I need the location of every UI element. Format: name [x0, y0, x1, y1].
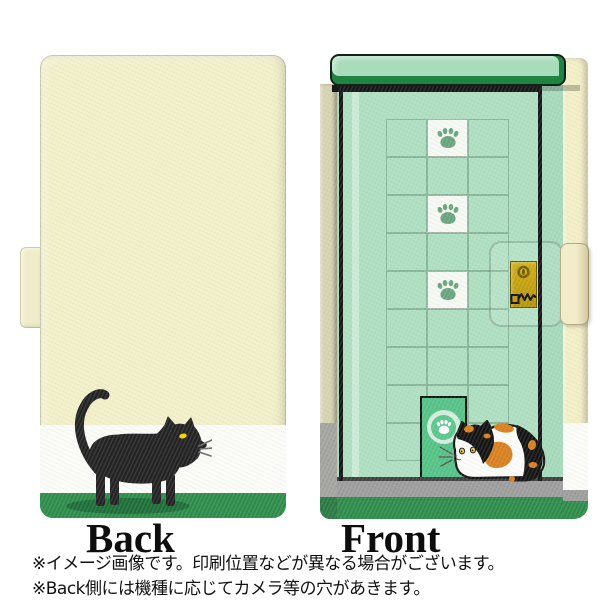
grid-cell	[427, 347, 468, 385]
edge-gray-segment	[563, 490, 588, 501]
disclaimer: ※イメージ画像です。印刷位置などが異なる場合がございます。 ※Back側には機種…	[32, 552, 592, 601]
keyhole-icon	[519, 267, 529, 277]
disclaimer-line-1: ※イメージ画像です。印刷位置などが異なる場合がございます。	[32, 552, 592, 577]
paw-print-icon	[435, 201, 461, 227]
case-spine	[320, 84, 337, 519]
door-header-bar	[330, 54, 566, 86]
grid-cell	[386, 119, 427, 157]
spine-gray-segment	[320, 423, 337, 497]
grid-cell	[468, 347, 509, 385]
paw-print-icon	[435, 125, 461, 151]
calico-whiskers	[439, 447, 452, 466]
back-cover	[40, 55, 286, 518]
door-left-edge	[339, 90, 343, 481]
grid-cell	[427, 157, 468, 195]
lock-plate	[510, 261, 537, 308]
edge-green-segment	[563, 501, 588, 519]
door-highlight	[352, 90, 359, 478]
grid-cell	[386, 157, 427, 195]
paw-print-icon	[435, 277, 461, 303]
grid-cell	[468, 119, 509, 157]
grid-cell	[386, 347, 427, 385]
paw-tile	[427, 195, 468, 233]
product-image: Back Front ※イメージ画像です。印刷位置などが異なる場合がございます。…	[0, 0, 600, 600]
grid-cell	[468, 157, 509, 195]
grid-cell	[386, 233, 427, 271]
calico-cat-illustration	[438, 414, 552, 484]
front-cover	[320, 54, 588, 519]
paw-tile	[427, 119, 468, 157]
grid-cell	[468, 195, 509, 233]
grid-cell	[386, 271, 427, 309]
front-strap-tab	[560, 243, 589, 325]
disclaimer-line-2: ※Back側には機種に応じてカメラ等の穴があきます。	[32, 577, 592, 601]
grid-cell	[386, 195, 427, 233]
door-top-shadow	[332, 85, 542, 92]
key-icon	[512, 294, 536, 303]
edge-white-segment	[563, 423, 588, 490]
grid-cell	[386, 309, 427, 347]
grid-cell	[427, 233, 468, 271]
spine-green-segment	[320, 497, 337, 519]
grid-cell	[427, 309, 468, 347]
cat-body	[89, 417, 206, 483]
black-cat-illustration	[58, 384, 212, 516]
front-face	[337, 85, 563, 519]
paw-tile	[427, 271, 468, 309]
